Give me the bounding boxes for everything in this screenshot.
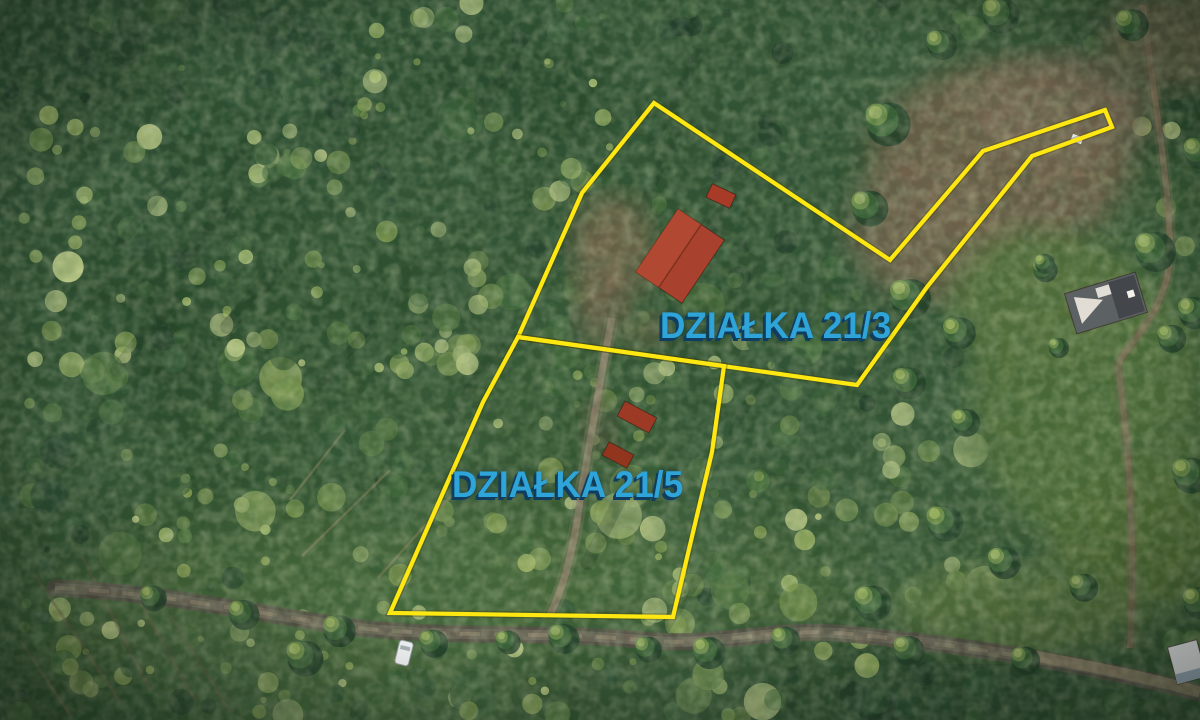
parcel-label-21-3: DZIAŁKA 21/3 [660, 307, 891, 344]
aerial-photo-canvas [0, 0, 1200, 720]
vignette [0, 0, 1200, 720]
aerial-photo: DZIAŁKA 21/3 DZIAŁKA 21/5 [0, 0, 1200, 720]
parcel-label-21-5: DZIAŁKA 21/5 [452, 466, 683, 503]
